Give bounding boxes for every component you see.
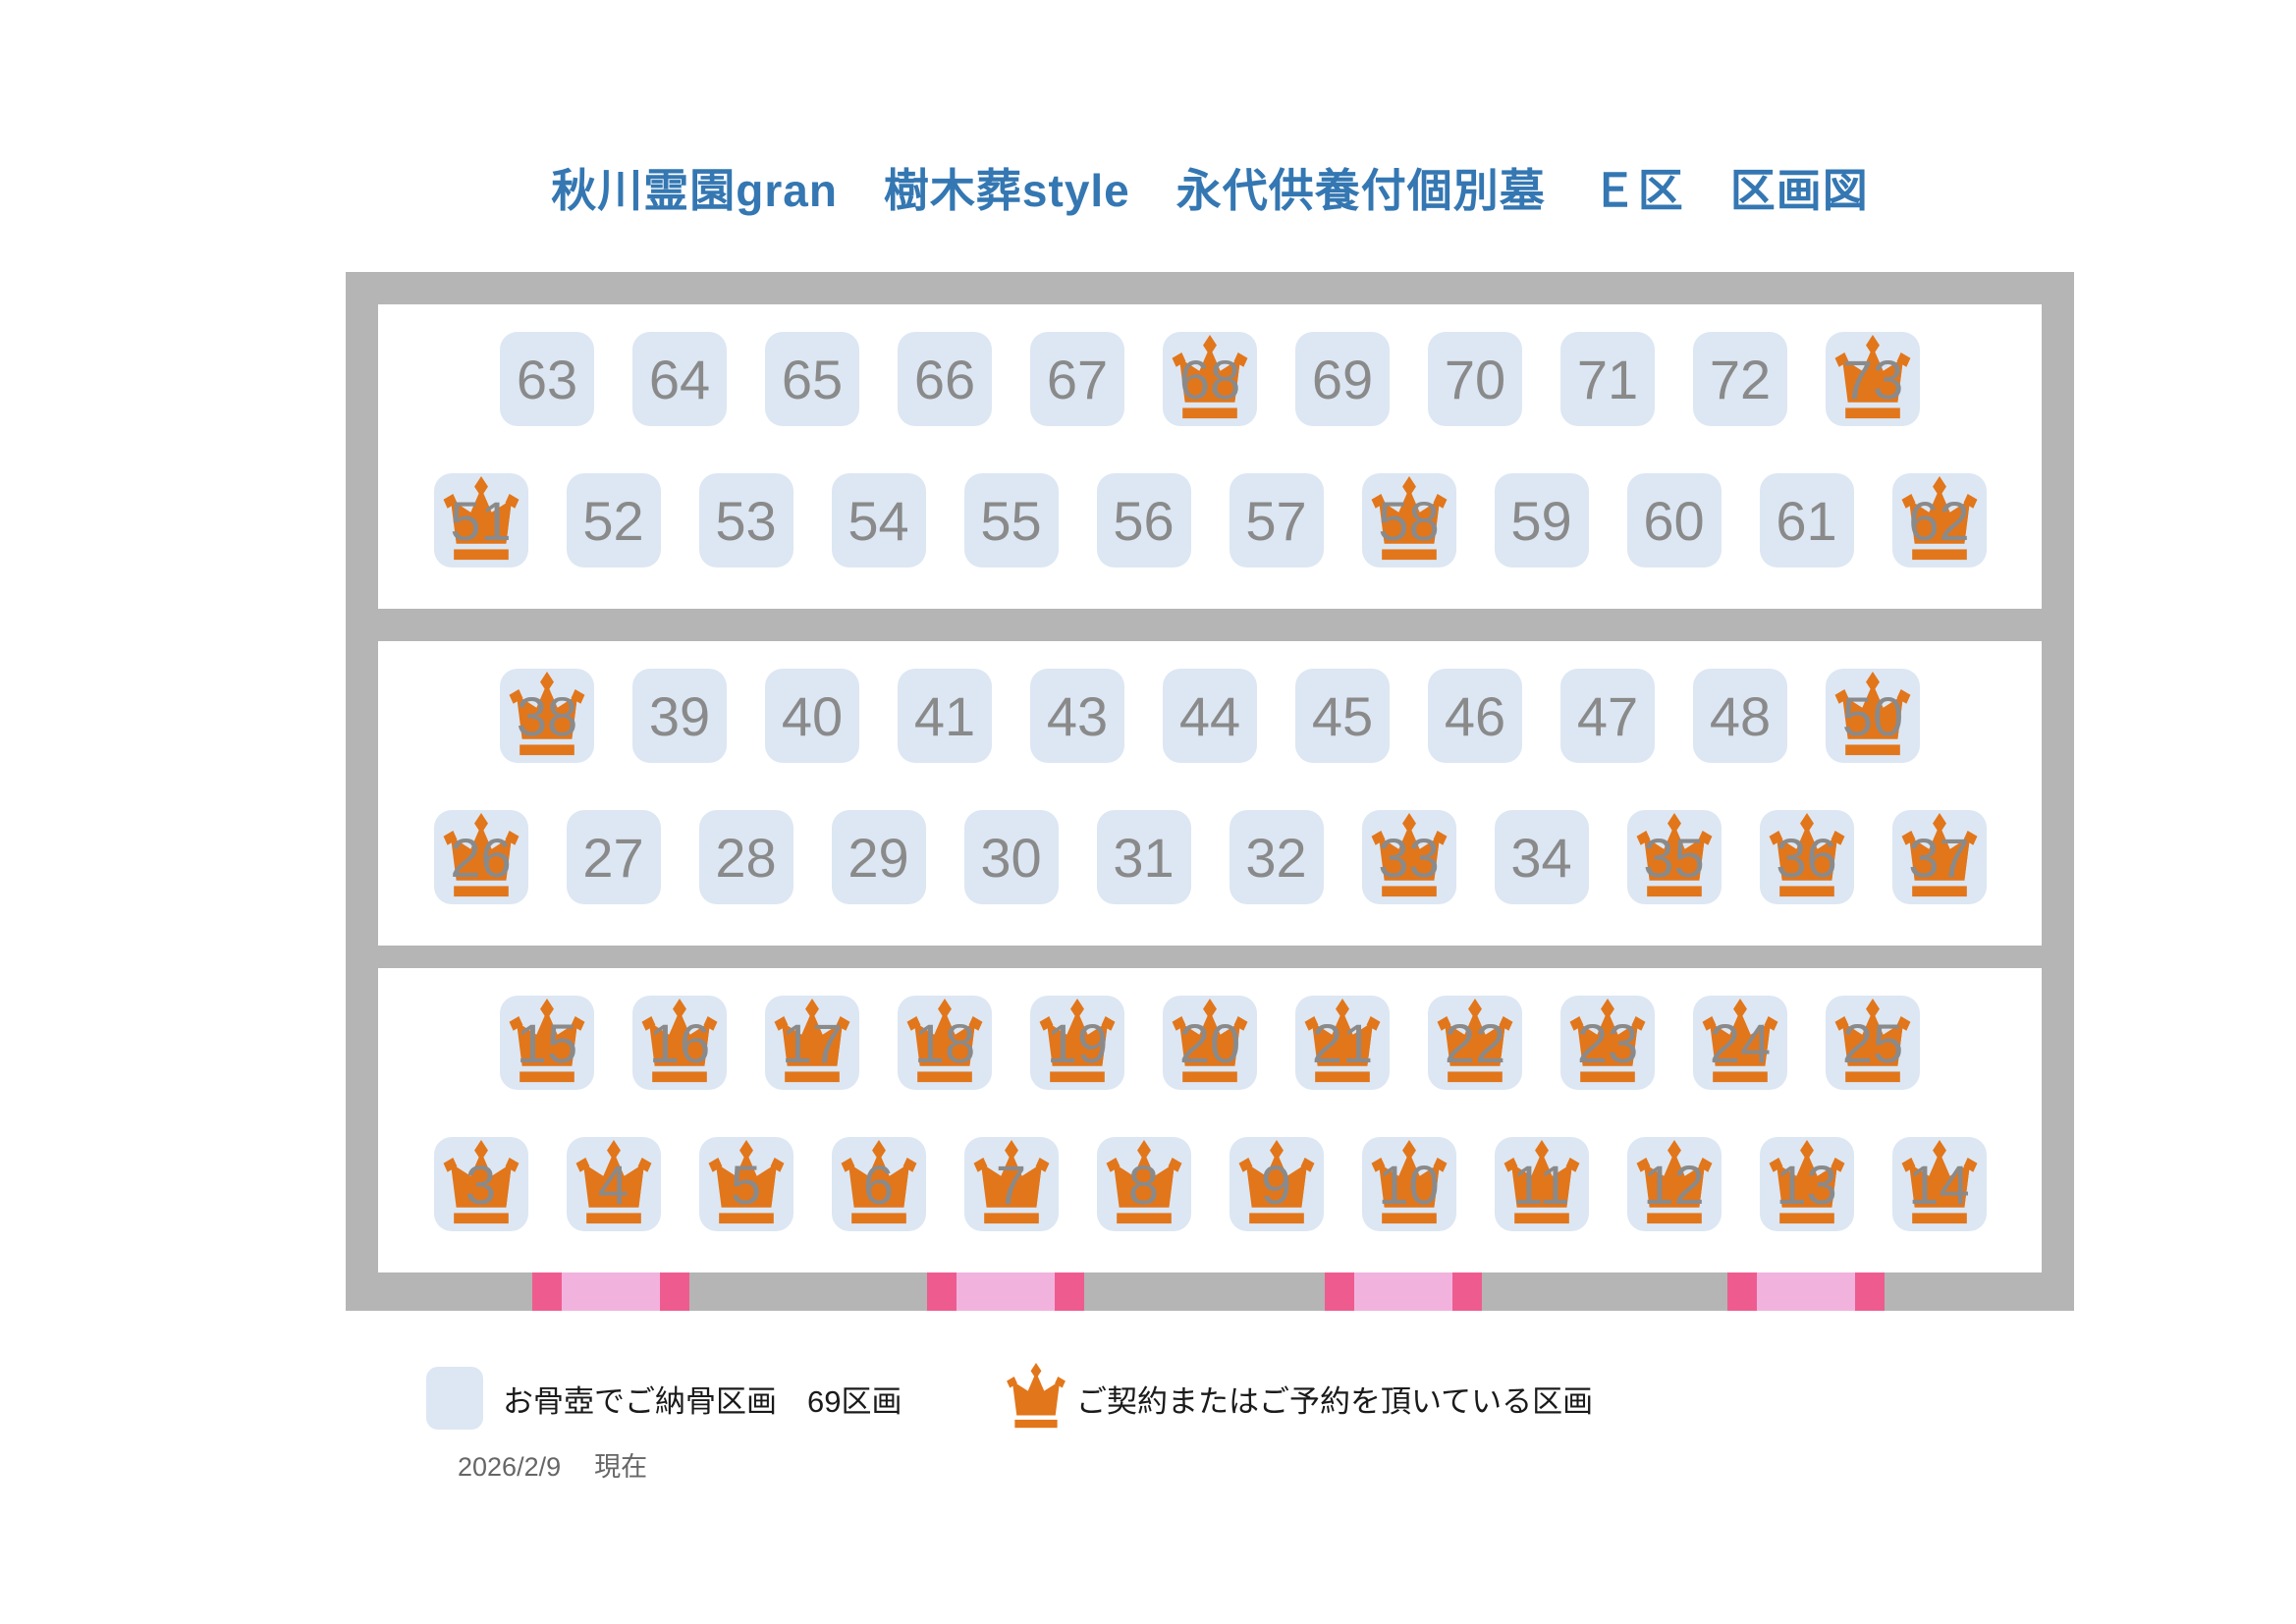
plot-number: 6 [832, 1137, 926, 1231]
legend-vacant-label: お骨壺でご納骨区画 69区画 [503, 1377, 902, 1421]
plot-number: 27 [567, 810, 661, 904]
plot-cell-18: 18 [898, 996, 992, 1090]
plot-number: 28 [699, 810, 793, 904]
plot-cell-38: 38 [500, 669, 594, 763]
plot-number: 34 [1495, 810, 1589, 904]
plot-cell-3: 3 [434, 1137, 528, 1231]
plot-number: 48 [1693, 669, 1787, 763]
plot-cell-73: 73 [1826, 332, 1920, 426]
plot-cell-29: 29 [832, 810, 926, 904]
plot-number: 15 [500, 996, 594, 1090]
plot-number: 70 [1428, 332, 1522, 426]
plot-cell-37: 37 [1892, 810, 1987, 904]
plot-number: 39 [632, 669, 727, 763]
plot-number: 20 [1163, 996, 1257, 1090]
plot-cell-26: 26 [434, 810, 528, 904]
plot-cell-55: 55 [964, 473, 1059, 568]
plot-number: 56 [1097, 473, 1191, 568]
plot-cell-69: 69 [1295, 332, 1390, 426]
plot-row: 515253545556575859606162 [378, 473, 2042, 568]
plot-number: 3 [434, 1137, 528, 1231]
plot-cell-34: 34 [1495, 810, 1589, 904]
pink-marker-edge [532, 1272, 562, 1311]
plot-number: 16 [632, 996, 727, 1090]
plot-number: 57 [1230, 473, 1324, 568]
plot-cell-43: 43 [1030, 669, 1124, 763]
plot-number: 5 [699, 1137, 793, 1231]
pink-marker-center [562, 1272, 660, 1311]
plot-cell-67: 67 [1030, 332, 1124, 426]
plot-cell-16: 16 [632, 996, 727, 1090]
plot-number: 46 [1428, 669, 1522, 763]
plot-cell-52: 52 [567, 473, 661, 568]
plot-map-page: 秋川霊園gran 樹木葬style 永代供養付個別墓 Ｅ区 区画図 636465… [0, 0, 2296, 1624]
plot-cell-9: 9 [1230, 1137, 1324, 1231]
plot-cell-17: 17 [765, 996, 859, 1090]
plot-row: 34567891011121314 [378, 1137, 2042, 1231]
plot-number: 11 [1495, 1137, 1589, 1231]
legend-crown-icon [1005, 1363, 1067, 1432]
plot-number: 66 [898, 332, 992, 426]
plot-cell-47: 47 [1560, 669, 1655, 763]
plot-number: 40 [765, 669, 859, 763]
plot-number: 12 [1627, 1137, 1722, 1231]
plot-cell-68: 68 [1163, 332, 1257, 426]
plot-number: 58 [1362, 473, 1456, 568]
plot-cell-4: 4 [567, 1137, 661, 1231]
plot-cell-21: 21 [1295, 996, 1390, 1090]
pink-marker [927, 1272, 1084, 1311]
plot-number: 72 [1693, 332, 1787, 426]
plot-section-bottom: 151617181920212223242534567891011121314 [378, 968, 2042, 1272]
plot-cell-71: 71 [1560, 332, 1655, 426]
plot-number: 8 [1097, 1137, 1191, 1231]
plot-cell-30: 30 [964, 810, 1059, 904]
plot-number: 7 [964, 1137, 1059, 1231]
plot-number: 25 [1826, 996, 1920, 1090]
plot-cell-59: 59 [1495, 473, 1589, 568]
plot-number: 47 [1560, 669, 1655, 763]
plot-cell-36: 36 [1760, 810, 1854, 904]
pink-marker-center [957, 1272, 1055, 1311]
plot-number: 73 [1826, 332, 1920, 426]
plot-cell-62: 62 [1892, 473, 1987, 568]
pink-marker-edge [1452, 1272, 1482, 1311]
plot-cell-10: 10 [1362, 1137, 1456, 1231]
plot-cell-35: 35 [1627, 810, 1722, 904]
plot-cell-61: 61 [1760, 473, 1854, 568]
plot-number: 35 [1627, 810, 1722, 904]
pink-marker-edge [1325, 1272, 1354, 1311]
plot-cell-27: 27 [567, 810, 661, 904]
plot-number: 31 [1097, 810, 1191, 904]
plot-number: 21 [1295, 996, 1390, 1090]
plot-cell-40: 40 [765, 669, 859, 763]
date-value: 2026/2/9 [458, 1452, 561, 1482]
plot-cell-64: 64 [632, 332, 727, 426]
plot-cell-57: 57 [1230, 473, 1324, 568]
pink-marker [1727, 1272, 1885, 1311]
plot-cell-25: 25 [1826, 996, 1920, 1090]
plot-number: 51 [434, 473, 528, 568]
plot-cell-14: 14 [1892, 1137, 1987, 1231]
plot-cell-54: 54 [832, 473, 926, 568]
pink-marker-edge [1055, 1272, 1084, 1311]
plot-cell-20: 20 [1163, 996, 1257, 1090]
plot-number: 13 [1760, 1137, 1854, 1231]
plot-number: 29 [832, 810, 926, 904]
plot-cell-70: 70 [1428, 332, 1522, 426]
plot-number: 26 [434, 810, 528, 904]
plot-number: 59 [1495, 473, 1589, 568]
plot-cell-60: 60 [1627, 473, 1722, 568]
plot-cell-8: 8 [1097, 1137, 1191, 1231]
plot-number: 45 [1295, 669, 1390, 763]
plot-cell-7: 7 [964, 1137, 1059, 1231]
plot-number: 55 [964, 473, 1059, 568]
plot-number: 9 [1230, 1137, 1324, 1231]
plot-cell-23: 23 [1560, 996, 1655, 1090]
plot-number: 68 [1163, 332, 1257, 426]
plot-number: 53 [699, 473, 793, 568]
plot-number: 41 [898, 669, 992, 763]
plot-number: 14 [1892, 1137, 1987, 1231]
map-frame: 6364656667686970717273515253545556575859… [346, 272, 2074, 1311]
plot-cell-41: 41 [898, 669, 992, 763]
pink-marker-center [1757, 1272, 1855, 1311]
plot-section-top: 6364656667686970717273515253545556575859… [378, 304, 2042, 609]
plot-cell-31: 31 [1097, 810, 1191, 904]
plot-cell-45: 45 [1295, 669, 1390, 763]
plot-cell-12: 12 [1627, 1137, 1722, 1231]
plot-cell-11: 11 [1495, 1137, 1589, 1231]
plot-number: 61 [1760, 473, 1854, 568]
plot-cell-22: 22 [1428, 996, 1522, 1090]
plot-number: 36 [1760, 810, 1854, 904]
plot-cell-39: 39 [632, 669, 727, 763]
plot-number: 18 [898, 996, 992, 1090]
plot-cell-5: 5 [699, 1137, 793, 1231]
plot-cell-48: 48 [1693, 669, 1787, 763]
plot-cell-72: 72 [1693, 332, 1787, 426]
plot-number: 32 [1230, 810, 1324, 904]
pink-marker-edge [1855, 1272, 1885, 1311]
plot-number: 30 [964, 810, 1059, 904]
plot-cell-66: 66 [898, 332, 992, 426]
plot-number: 60 [1627, 473, 1722, 568]
plot-number: 43 [1030, 669, 1124, 763]
plot-cell-24: 24 [1693, 996, 1787, 1090]
plot-number: 23 [1560, 996, 1655, 1090]
plot-cell-6: 6 [832, 1137, 926, 1231]
plot-number: 22 [1428, 996, 1522, 1090]
plot-cell-58: 58 [1362, 473, 1456, 568]
legend-vacant-swatch [426, 1367, 483, 1430]
plot-row: 1516171819202122232425 [378, 996, 2042, 1090]
plot-cell-33: 33 [1362, 810, 1456, 904]
plot-row: 6364656667686970717273 [378, 332, 2042, 426]
date-note: 2026/2/9現在 [458, 1445, 647, 1484]
page-title: 秋川霊園gran 樹木葬style 永代供養付個別墓 Ｅ区 区画図 [346, 155, 2074, 220]
plot-number: 62 [1892, 473, 1987, 568]
plot-number: 52 [567, 473, 661, 568]
plot-number: 19 [1030, 996, 1124, 1090]
pink-marker-edge [1727, 1272, 1757, 1311]
plot-number: 54 [832, 473, 926, 568]
pink-marker-center [1354, 1272, 1452, 1311]
plot-number: 17 [765, 996, 859, 1090]
pink-marker [532, 1272, 689, 1311]
plot-cell-65: 65 [765, 332, 859, 426]
plot-cell-63: 63 [500, 332, 594, 426]
plot-row: 262728293031323334353637 [378, 810, 2042, 904]
plot-cell-46: 46 [1428, 669, 1522, 763]
plot-number: 67 [1030, 332, 1124, 426]
plot-number: 10 [1362, 1137, 1456, 1231]
plot-cell-19: 19 [1030, 996, 1124, 1090]
plot-number: 65 [765, 332, 859, 426]
plot-number: 24 [1693, 996, 1787, 1090]
legend-reserved-label: ご契約またはご予約を頂いている区画 [1076, 1377, 1593, 1421]
plot-number: 69 [1295, 332, 1390, 426]
plot-number: 63 [500, 332, 594, 426]
plot-cell-44: 44 [1163, 669, 1257, 763]
plot-cell-15: 15 [500, 996, 594, 1090]
plot-number: 44 [1163, 669, 1257, 763]
plot-section-middle: 3839404143444546474850262728293031323334… [378, 641, 2042, 946]
plot-cell-32: 32 [1230, 810, 1324, 904]
plot-row: 3839404143444546474850 [378, 669, 2042, 763]
plot-number: 33 [1362, 810, 1456, 904]
plot-number: 50 [1826, 669, 1920, 763]
date-suffix: 現在 [594, 1452, 647, 1482]
plot-cell-13: 13 [1760, 1137, 1854, 1231]
plot-cell-51: 51 [434, 473, 528, 568]
plot-cell-53: 53 [699, 473, 793, 568]
plot-number: 38 [500, 669, 594, 763]
pink-marker-edge [660, 1272, 689, 1311]
pink-marker [1325, 1272, 1482, 1311]
plot-number: 37 [1892, 810, 1987, 904]
plot-cell-50: 50 [1826, 669, 1920, 763]
plot-cell-28: 28 [699, 810, 793, 904]
pink-marker-edge [927, 1272, 957, 1311]
plot-number: 4 [567, 1137, 661, 1231]
plot-number: 71 [1560, 332, 1655, 426]
plot-cell-56: 56 [1097, 473, 1191, 568]
plot-number: 64 [632, 332, 727, 426]
